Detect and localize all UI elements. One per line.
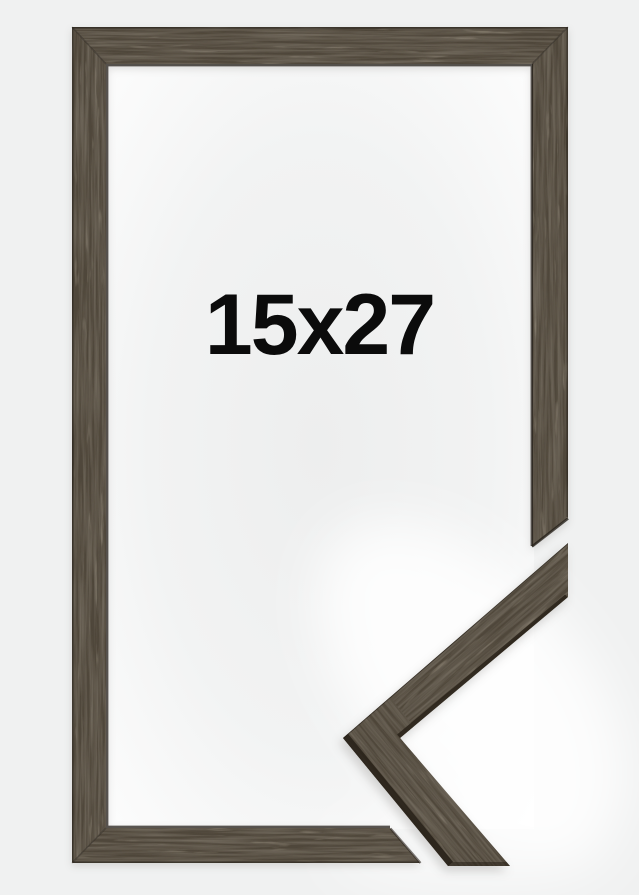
- frame-illustration: [0, 0, 639, 895]
- frame-top-rail: [72, 27, 568, 64]
- product-photo: 15x27: [0, 0, 639, 895]
- frame-left-rail: [72, 27, 106, 863]
- frame-size-label: 15x27: [0, 282, 639, 368]
- frame-bottom-rail: [72, 828, 420, 863]
